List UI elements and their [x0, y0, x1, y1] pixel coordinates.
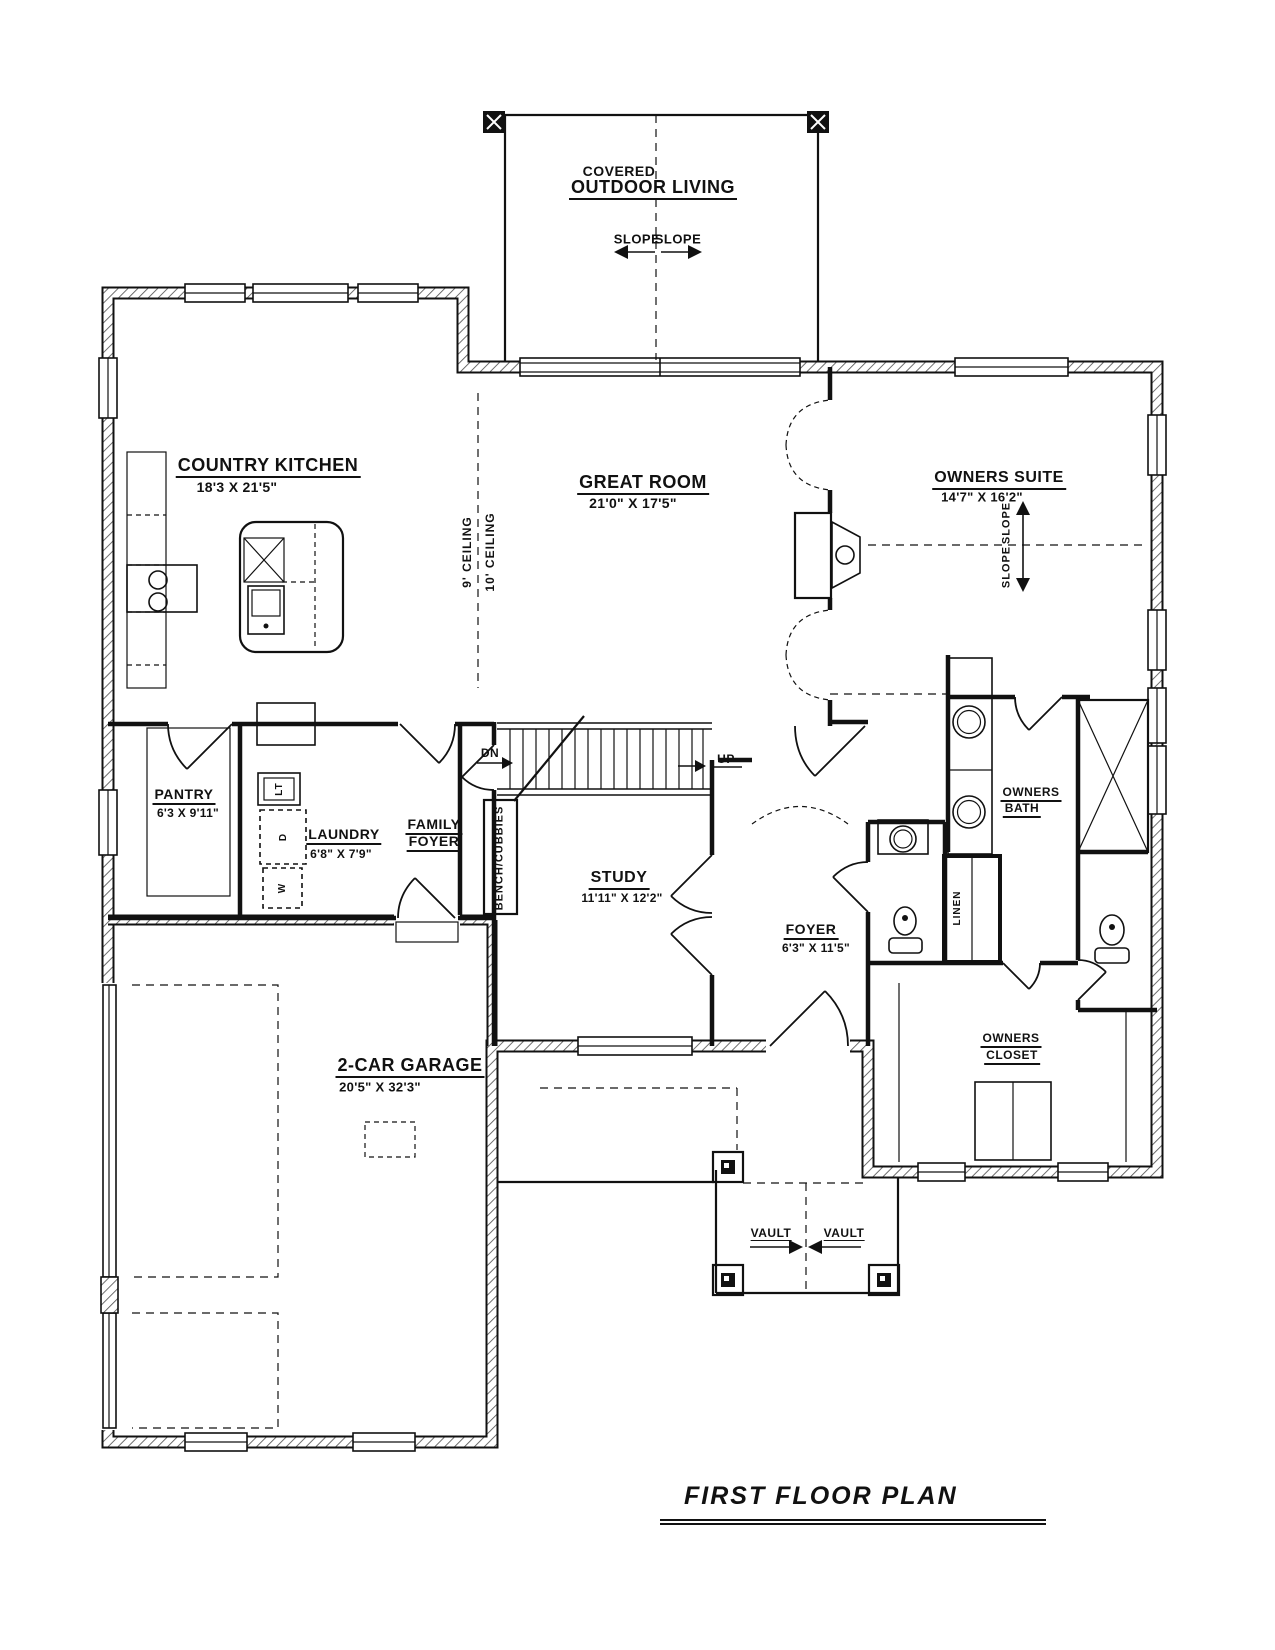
patio-slope-right-label: SLOPE: [655, 233, 702, 246]
vault-left-label: VAULT: [751, 1227, 792, 1241]
outdoor-living-label-covered: COVERED: [583, 164, 656, 178]
study-label: STUDY: [589, 870, 650, 890]
owners-closet-label-line2: CLOSET: [984, 1049, 1040, 1065]
dryer-label: D: [279, 833, 289, 841]
kitchen-dims: 18'3 X 21'5": [197, 480, 278, 494]
stairs: [497, 716, 712, 801]
pantry-dims: 6'3 X 9'11": [157, 807, 219, 819]
family-foyer-label-line2: FOYER: [407, 834, 462, 852]
washer-label: W: [278, 883, 288, 893]
plan-title: FIRST FLOOR PLAN: [660, 1482, 1046, 1525]
suite-slope-up-label: SLOPE: [1002, 502, 1013, 544]
great-room-dims: 21'0" X 17'5": [589, 496, 677, 510]
garage-doors: [101, 985, 118, 1428]
stairs-dn-label: DN: [481, 747, 499, 759]
fireplace: [795, 513, 860, 598]
stair-direction-arrows: [477, 757, 742, 772]
bench-cubbies-label: BENCH/CUBBIES: [495, 806, 506, 911]
vault-right-label: VAULT: [824, 1227, 865, 1241]
kitchen-island: [240, 522, 343, 652]
owners-bath-label-line2: BATH: [1003, 802, 1041, 818]
suite-slope-arrow: [1016, 501, 1030, 592]
great-room-label: GREAT ROOM: [577, 473, 709, 495]
stairs-up-label: UP: [717, 753, 735, 765]
owners-suite-label: OWNERS SUITE: [932, 470, 1066, 490]
floor-plan-drawing: [0, 0, 1275, 1650]
outdoor-living-label: OUTDOOR LIVING: [569, 178, 737, 200]
powder-room-fixtures: [878, 820, 928, 953]
kitchen-fixtures: [127, 452, 343, 745]
study-dims: 11'11" X 12'2": [581, 892, 662, 904]
laundry-dims: 6'8" X 7'9": [310, 848, 372, 860]
patio-slope-left-label: SLOPE: [614, 233, 661, 246]
sliding-door: [520, 358, 800, 376]
laundry-tub-label: LT: [275, 782, 285, 795]
water-closet-fixtures: [1095, 915, 1129, 963]
laundry-label: LAUNDRY: [306, 827, 381, 845]
wall-openings: [99, 910, 850, 1430]
porch: [497, 1152, 899, 1295]
owners-bath-label-line1: OWNERS: [1001, 786, 1062, 802]
foyer-dims: 6'3" X 11'5": [782, 942, 850, 954]
garage-dims: 20'5" X 32'3": [339, 1081, 421, 1094]
foyer-label: FOYER: [784, 922, 839, 940]
linen-label: LINEN: [953, 891, 963, 926]
shower: [1078, 700, 1148, 852]
ceiling-9-label: 9' CEILING: [461, 516, 473, 588]
suite-slope-down-label: SLOPE: [1002, 546, 1013, 588]
garage-label: 2-CAR GARAGE: [335, 1056, 484, 1078]
kitchen-label: COUNTRY KITCHEN: [176, 456, 361, 478]
floor-plan-sheet: COVERED OUTDOOR LIVING SLOPE SLOPE COUNT…: [0, 0, 1275, 1650]
dashed-reference-lines: [127, 115, 1147, 1428]
patio-slope-arrows: [614, 245, 702, 259]
ceiling-10-label: 10' CEILING: [484, 512, 496, 591]
pantry-label: PANTRY: [153, 787, 216, 805]
owners-closet-label-line1: OWNERS: [981, 1032, 1042, 1048]
